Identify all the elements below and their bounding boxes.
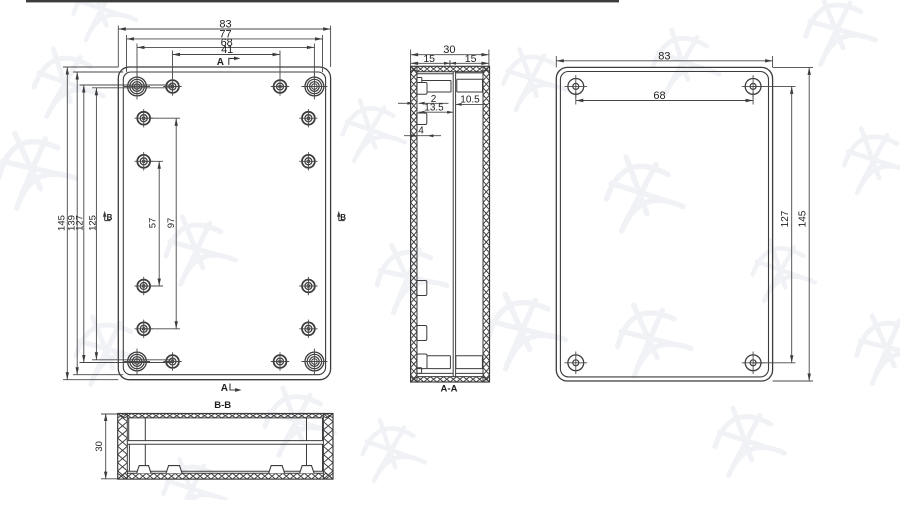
svg-text:4: 4 [418,126,424,137]
svg-text:B: B [107,213,113,222]
svg-text:127: 127 [75,215,86,231]
svg-text:57: 57 [148,218,159,229]
svg-text:30: 30 [94,441,105,452]
svg-text:B: B [340,213,346,222]
svg-text:15: 15 [423,53,435,65]
svg-text:A: A [217,57,224,68]
svg-text:127: 127 [780,210,791,227]
svg-text:15: 15 [465,53,477,65]
svg-text:68: 68 [653,90,665,102]
svg-text:125: 125 [87,215,98,231]
svg-text:83: 83 [658,50,670,62]
svg-text:A: A [221,383,228,394]
svg-text:A-A: A-A [441,384,458,395]
svg-text:97: 97 [166,218,177,229]
svg-text:30: 30 [443,44,455,56]
svg-text:41: 41 [221,44,233,56]
svg-text:10.5: 10.5 [460,94,480,105]
svg-text:145: 145 [798,210,809,227]
svg-text:B-B: B-B [214,400,231,411]
